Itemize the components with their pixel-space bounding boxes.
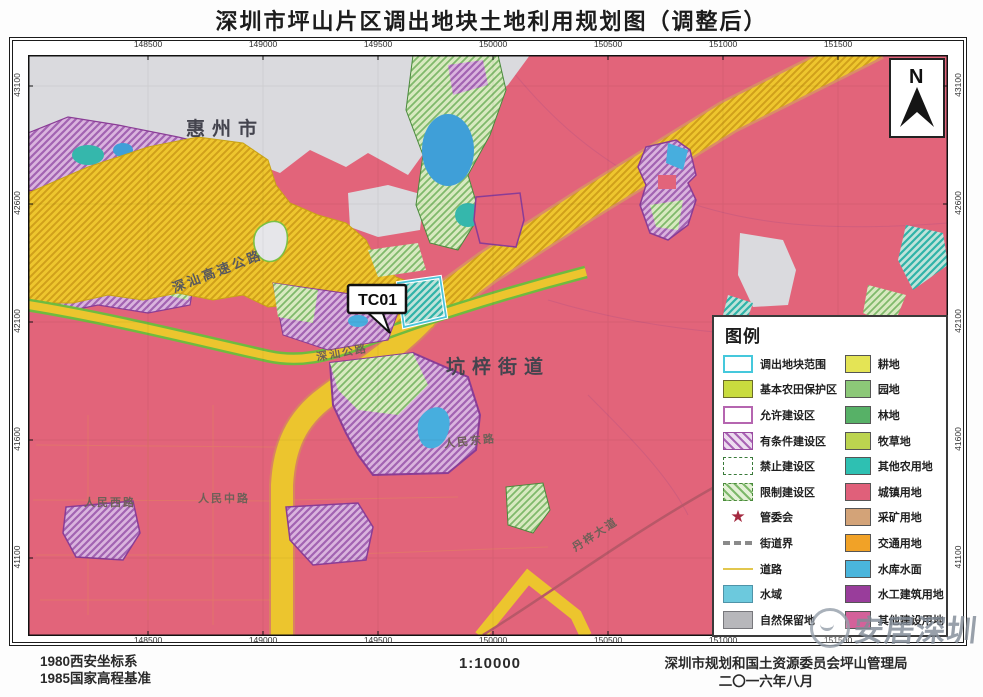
legend-row: ★管委会 xyxy=(723,505,845,531)
coordinate-label: 42100 xyxy=(953,299,963,343)
legend-row: 水域 xyxy=(723,581,845,607)
legend-swatch-fill xyxy=(845,560,871,578)
coordinate-label: 151500 xyxy=(816,39,860,49)
map-label-renmin-mid: 人民中路 xyxy=(198,491,250,505)
legend-swatch-hatch-green xyxy=(723,483,753,501)
legend-item-label: 采矿用地 xyxy=(878,509,922,525)
gray-pocket xyxy=(348,185,424,237)
datum-note: 1980西安坐标系 1985国家高程基准 xyxy=(40,653,151,687)
water-patch xyxy=(72,145,104,165)
coordinate-label: 150000 xyxy=(471,39,515,49)
legend-item-label: 其他农用地 xyxy=(878,458,933,474)
coordinate-label: 41100 xyxy=(953,535,963,579)
legend-swatch-fill xyxy=(845,380,871,398)
watermark-text: 安居深圳 xyxy=(852,606,981,650)
coordinate-label: 150500 xyxy=(586,635,630,645)
legend-swatch-fill xyxy=(845,534,871,552)
legend-item-label: 园地 xyxy=(878,381,900,397)
legend-item-label: 允许建设区 xyxy=(760,407,815,423)
map-scale: 1:10000 xyxy=(430,655,550,672)
coordinate-label: 41600 xyxy=(953,417,963,461)
coordinate-label: 41600 xyxy=(12,417,22,461)
legend-swatch-fill xyxy=(845,432,871,450)
coordinate-label: 149500 xyxy=(356,39,400,49)
coordinate-label: 42600 xyxy=(953,181,963,225)
legend-row: 采矿用地 xyxy=(845,505,946,531)
legend-item-label: 限制建设区 xyxy=(760,484,815,500)
legend-swatch-line-thin xyxy=(723,568,753,570)
legend-item-label: 自然保留地 xyxy=(760,612,815,628)
legend-swatch-fill xyxy=(723,611,753,629)
datum-line2: 1985国家高程基准 xyxy=(40,670,151,687)
water-patch xyxy=(348,315,368,327)
legend-row: 有条件建设区 xyxy=(723,428,845,454)
watermark-logo-icon xyxy=(810,608,850,648)
map-label-street: 坑梓街道 xyxy=(446,355,550,378)
coordinate-label: 42100 xyxy=(12,299,22,343)
legend-swatch-star: ★ xyxy=(723,508,753,526)
coordinate-label: 150500 xyxy=(586,39,630,49)
legend-row: 禁止建设区 xyxy=(723,453,845,479)
legend-row: 牧草地 xyxy=(845,428,946,454)
legend-swatch-hatch-purple xyxy=(723,432,753,450)
legend-item-label: 水工建筑用地 xyxy=(878,586,944,602)
legend-item-label: 禁止建设区 xyxy=(760,458,815,474)
inner-parcel xyxy=(658,175,676,189)
legend-item-label: 城镇用地 xyxy=(878,484,922,500)
legend-swatch-fill xyxy=(845,585,871,603)
page-title: 深圳市坪山片区调出地块土地利用规划图（调整后） xyxy=(0,4,983,36)
legend-swatch-fill xyxy=(723,380,753,398)
coordinate-label: 149500 xyxy=(356,635,400,645)
legend-row: 林地 xyxy=(845,402,946,428)
coordinate-label: 42600 xyxy=(12,181,22,225)
coordinate-label: 41100 xyxy=(12,535,22,579)
legend-body: 调出地块范围基本农田保护区允许建设区有条件建设区禁止建设区限制建设区★管委会街道… xyxy=(714,351,946,633)
coordinate-label: 43100 xyxy=(12,63,22,107)
legend-row: 交通用地 xyxy=(845,530,946,556)
legend-swatch-fill xyxy=(845,355,871,373)
legend-row: 城镇用地 xyxy=(845,479,946,505)
agency-name: 深圳市规划和国土资源委员会坪山管理局 xyxy=(636,652,936,672)
watermark: 安居深圳 xyxy=(810,606,978,650)
water-patch xyxy=(422,114,474,186)
legend-swatch-line-thick xyxy=(723,541,753,545)
legend-swatch-outline-dashed xyxy=(723,457,753,475)
legend-row: 道路 xyxy=(723,556,845,582)
legend-item-label: 街道界 xyxy=(760,535,793,551)
legend-item-label: 水库水面 xyxy=(878,561,922,577)
legend-swatch-fill xyxy=(845,406,871,424)
legend-swatch-fill xyxy=(845,483,871,501)
legend-box: 图例 调出地块范围基本农田保护区允许建设区有条件建设区禁止建设区限制建设区★管委… xyxy=(712,315,948,637)
coordinate-label: 43100 xyxy=(953,63,963,107)
legend-item-label: 管委会 xyxy=(760,509,793,525)
coordinate-label: 148500 xyxy=(126,39,170,49)
legend-row: 其他农用地 xyxy=(845,453,946,479)
legend-row: 限制建设区 xyxy=(723,479,845,505)
legend-row: 基本农田保护区 xyxy=(723,377,845,403)
legend-swatch-fill xyxy=(845,457,871,475)
legend-row: 街道界 xyxy=(723,530,845,556)
coordinate-label: 148500 xyxy=(126,635,170,645)
legend-row: 调出地块范围 xyxy=(723,351,845,377)
legend-row: 水工建筑用地 xyxy=(845,581,946,607)
legend-swatch-fill xyxy=(723,585,753,603)
legend-item-label: 耕地 xyxy=(878,356,900,372)
datum-line1: 1980西安坐标系 xyxy=(40,653,151,670)
map-label-city: 惠州市 xyxy=(186,117,264,140)
legend-title: 图例 xyxy=(725,322,946,347)
legend-column-right: 耕地园地林地牧草地其他农用地城镇用地采矿用地交通用地水库水面水工建筑用地其他建设… xyxy=(845,351,946,633)
coordinate-label: 151000 xyxy=(701,39,745,49)
legend-column-left: 调出地块范围基本农田保护区允许建设区有条件建设区禁止建设区限制建设区★管委会街道… xyxy=(714,351,845,633)
conditional-zone xyxy=(63,501,140,560)
legend-item-label: 基本农田保护区 xyxy=(760,381,837,397)
legend-swatch-outline xyxy=(723,406,753,424)
legend-row: 水库水面 xyxy=(845,556,946,582)
legend-item-label: 林地 xyxy=(878,407,900,423)
map-date: 二〇一六年八月 xyxy=(640,670,892,690)
map-label-renmin-west: 人民西路 xyxy=(84,495,136,509)
legend-swatch-fill xyxy=(845,508,871,526)
restricted-zone xyxy=(273,283,318,323)
legend-row: 园地 xyxy=(845,377,946,403)
legend-item-label: 有条件建设区 xyxy=(760,433,826,449)
north-label: N xyxy=(909,66,923,88)
plan-sheet: 深圳市坪山片区调出地块土地利用规划图（调整后） 1485001485001490… xyxy=(0,0,983,697)
coordinate-label: 149000 xyxy=(241,39,285,49)
legend-item-label: 调出地块范围 xyxy=(760,356,826,372)
tc01-callout-label: TC01 xyxy=(358,292,397,309)
coordinate-label: 149000 xyxy=(241,635,285,645)
legend-swatch-outline xyxy=(723,355,753,373)
north-arrow: N xyxy=(890,59,944,137)
permitted-zone xyxy=(474,193,524,247)
legend-item-label: 牧草地 xyxy=(878,433,911,449)
legend-item-label: 水域 xyxy=(760,586,782,602)
legend-item-label: 交通用地 xyxy=(878,535,922,551)
legend-row: 耕地 xyxy=(845,351,946,377)
coordinate-label: 150000 xyxy=(471,635,515,645)
legend-item-label: 道路 xyxy=(760,561,782,577)
legend-row: 允许建设区 xyxy=(723,402,845,428)
